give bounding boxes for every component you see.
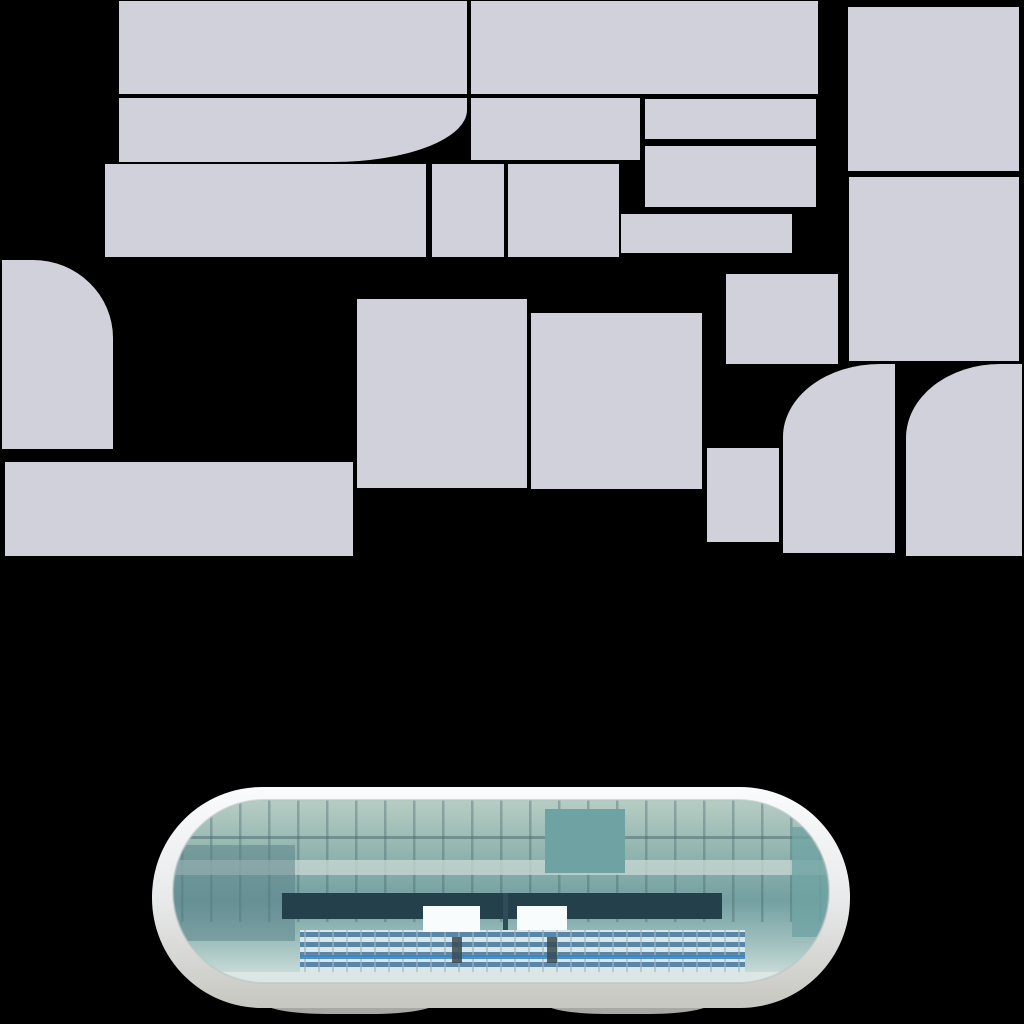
block-row3-mid-square xyxy=(508,164,619,257)
scoreboard-left xyxy=(423,906,480,932)
block-row3-wide xyxy=(105,164,426,257)
facade-teal-panel xyxy=(545,809,625,873)
block-row2-mid xyxy=(471,98,640,160)
block-bottom-left-wide xyxy=(5,462,353,556)
stadium-photo xyxy=(152,787,850,1008)
block-right-big-square xyxy=(849,177,1019,361)
grandstand-rail xyxy=(300,955,745,959)
block-top-right-tall xyxy=(848,7,1019,171)
block-row3-right-thin xyxy=(621,214,792,253)
stadium-svg xyxy=(152,787,850,1008)
grandstand-seating xyxy=(300,930,745,974)
block-row2-curved xyxy=(119,98,467,162)
block-center-tall-right xyxy=(531,313,702,489)
block-top-mid-wide xyxy=(471,1,818,94)
block-round-corner-left xyxy=(783,364,895,553)
scoreboard-right xyxy=(517,906,567,930)
concourse-dark-band xyxy=(282,893,722,919)
block-left-round-top xyxy=(2,260,113,449)
block-row2-right-low xyxy=(645,146,816,207)
facade-left-shade xyxy=(173,845,295,941)
block-lower-small-square xyxy=(707,448,779,542)
block-top-left-wide xyxy=(119,1,467,94)
canvas xyxy=(0,0,1024,1024)
block-row2-right-thin xyxy=(645,99,816,139)
block-center-tall-left xyxy=(357,299,527,488)
block-mid-small-rect xyxy=(726,274,838,364)
figure-right xyxy=(547,937,557,963)
facade-divider-line xyxy=(173,836,829,839)
block-row3-small-square xyxy=(432,164,504,257)
block-round-corner-right xyxy=(906,364,1022,556)
figure-left xyxy=(452,937,462,963)
